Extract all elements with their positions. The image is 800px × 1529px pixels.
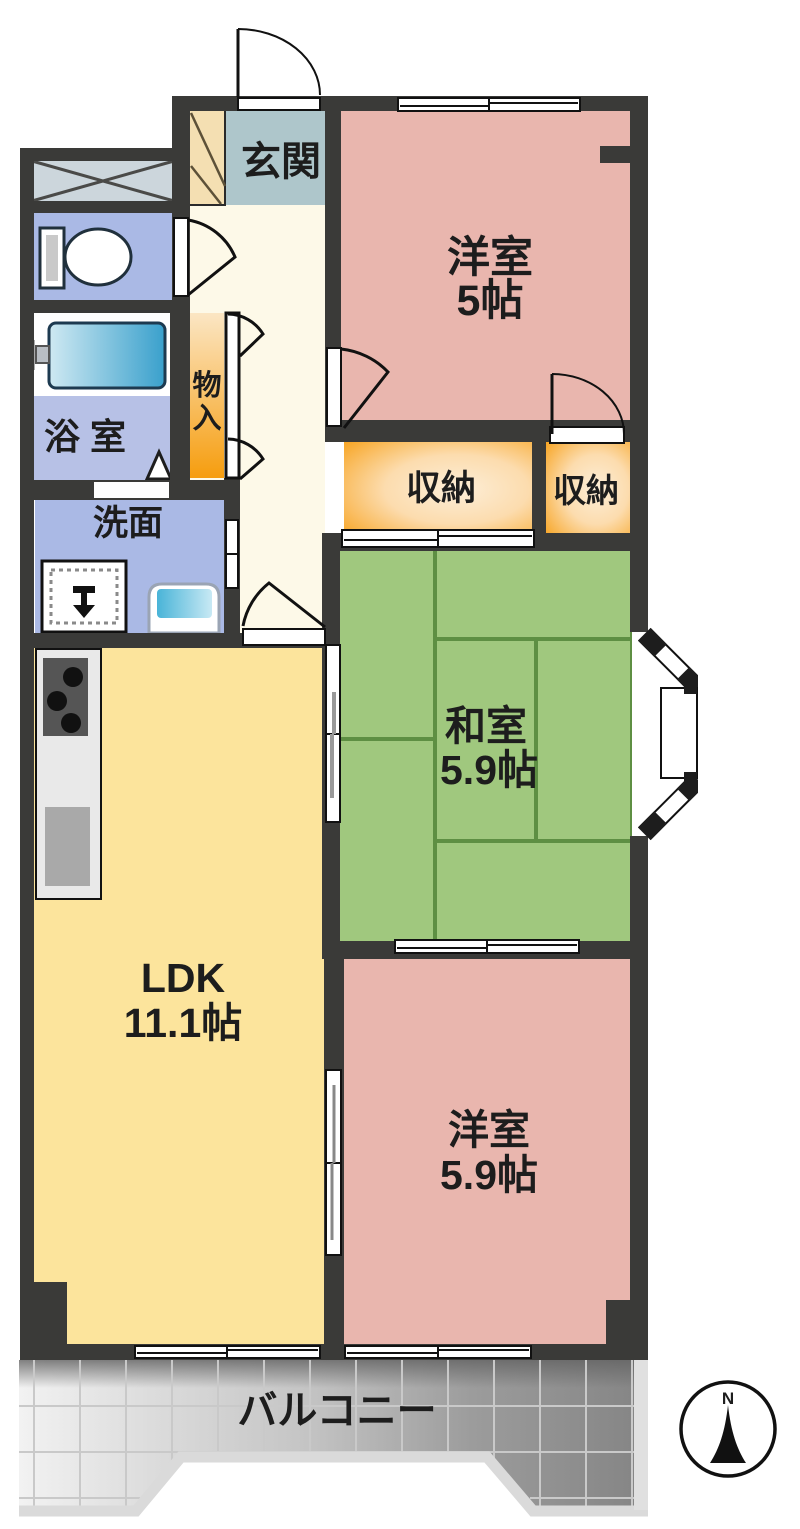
svg-text:入: 入 (192, 403, 221, 435)
svg-text:洗面: 洗面 (93, 504, 163, 543)
svg-text:洋室: 洋室 (447, 234, 533, 282)
svg-text:収納: 収納 (406, 469, 476, 508)
svg-text:LDK: LDK (141, 955, 226, 1001)
svg-text:5.9帖: 5.9帖 (440, 1152, 538, 1198)
svg-text:5.9帖: 5.9帖 (440, 747, 538, 793)
svg-text:和室: 和室 (445, 703, 527, 749)
svg-text:洋室: 洋室 (448, 1107, 530, 1153)
svg-text:バルコニー: バルコニー (237, 1389, 436, 1433)
svg-text:物: 物 (192, 369, 221, 402)
svg-text:収納: 収納 (553, 472, 619, 509)
svg-text:玄関: 玄関 (241, 140, 321, 184)
svg-text:浴室: 浴室 (44, 416, 136, 457)
svg-text:11.1帖: 11.1帖 (124, 1000, 243, 1046)
svg-text:5帖: 5帖 (457, 277, 524, 325)
